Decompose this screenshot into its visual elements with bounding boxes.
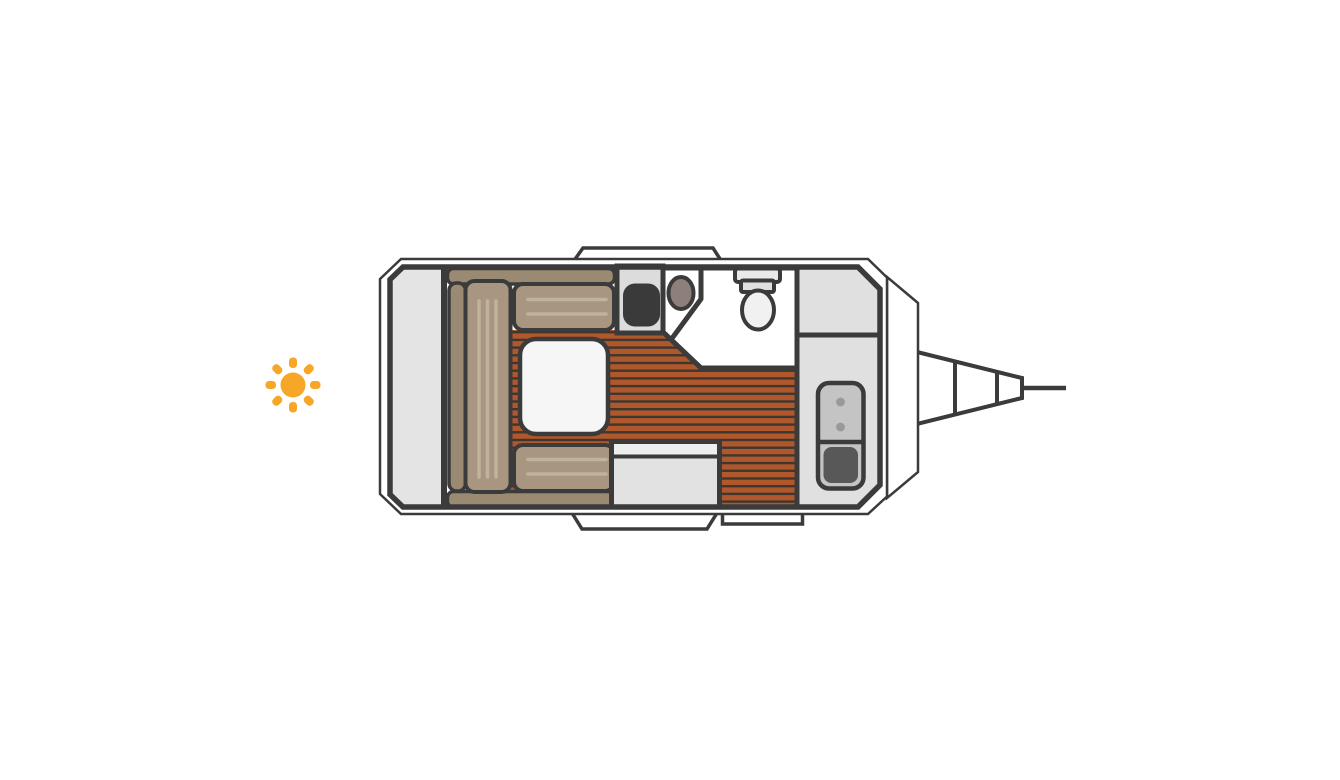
fridge-heater-unit bbox=[818, 383, 864, 489]
appliance-door bbox=[824, 447, 859, 483]
bench-top-band bbox=[614, 444, 717, 455]
sun-icon bbox=[266, 358, 321, 413]
dinette-table bbox=[520, 339, 608, 434]
floorplan-svg bbox=[0, 0, 1340, 780]
sun-ray bbox=[289, 402, 297, 413]
drawbar-frame bbox=[917, 352, 1022, 424]
sun-ray bbox=[302, 363, 315, 376]
control-knob bbox=[836, 423, 845, 432]
entry-door-bump bbox=[572, 513, 717, 529]
kitchen-sink bbox=[623, 284, 660, 327]
control-knob bbox=[836, 398, 845, 407]
tow-hitch-drawbar bbox=[917, 352, 1066, 424]
front-nose-panel bbox=[887, 277, 918, 498]
bathroom bbox=[663, 267, 797, 368]
sun-ray bbox=[271, 363, 284, 376]
sun-ray bbox=[271, 394, 284, 407]
dinette-seat-bottom bbox=[514, 445, 614, 491]
kitchen bbox=[617, 266, 663, 333]
sun-ray bbox=[266, 381, 277, 389]
canvas bbox=[0, 0, 1340, 780]
dinette bbox=[448, 269, 615, 508]
dinette-seat-top bbox=[514, 284, 614, 330]
bench-storage-box bbox=[612, 442, 720, 508]
wash-basin bbox=[669, 277, 694, 309]
rear-storage-platform bbox=[391, 268, 442, 507]
sun-core bbox=[281, 373, 306, 398]
toilet-bowl bbox=[742, 291, 774, 330]
sun-ray bbox=[302, 394, 315, 407]
dinette-side-bolster bbox=[449, 283, 466, 491]
caravan-floorplan bbox=[380, 248, 1066, 529]
sun-ray bbox=[289, 358, 297, 369]
sun-ray bbox=[310, 381, 321, 389]
